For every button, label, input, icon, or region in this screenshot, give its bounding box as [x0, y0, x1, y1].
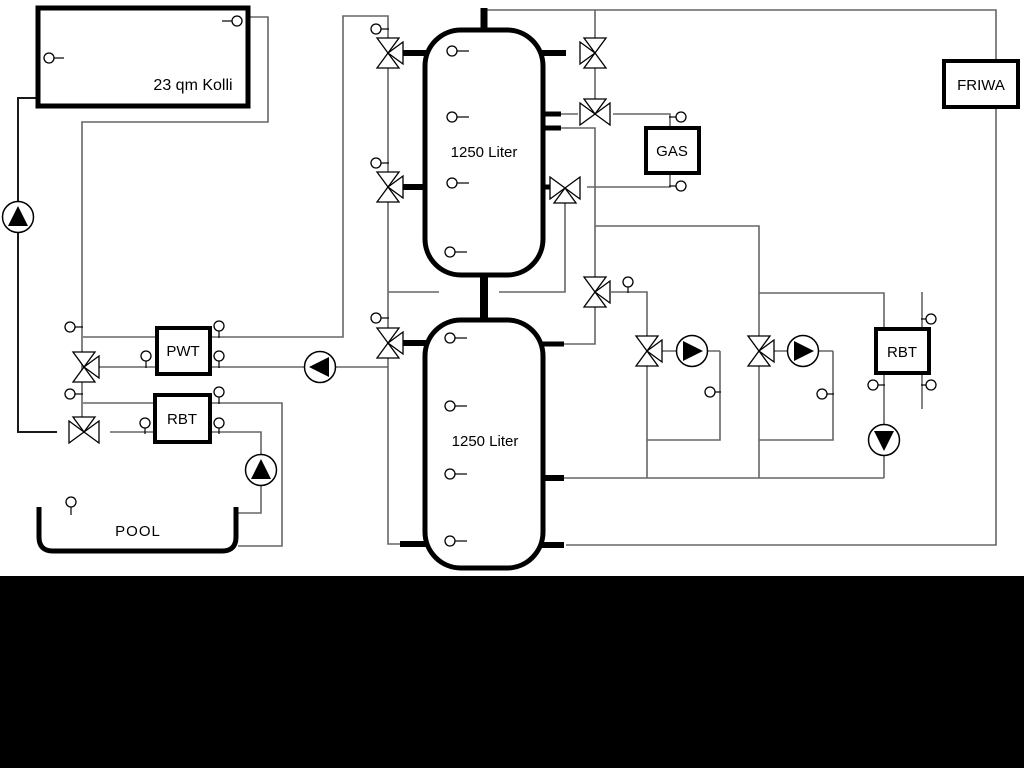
sensor-bulb: [926, 314, 936, 324]
pump-rbt-right-icon: [869, 425, 900, 456]
bottom-black-band: [0, 576, 1024, 768]
sensor-bulb: [65, 322, 75, 332]
buffer-tank-2-label: 1250 Liter: [452, 433, 519, 450]
sensor-bulb: [926, 380, 936, 390]
pwt-heat-exchanger-label: PWT: [166, 343, 199, 360]
sensor-bulb: [705, 387, 715, 397]
sensor-bulb: [445, 247, 455, 257]
pump-pwt-icon: [305, 352, 336, 383]
sensor-bulb: [371, 313, 381, 323]
pump-pool-icon: [246, 455, 277, 486]
sensor-bulb: [676, 112, 686, 122]
sensor-bulb: [445, 469, 455, 479]
sensor-bulb: [445, 401, 455, 411]
sensor-bulb: [140, 418, 150, 428]
collector-box-label: 23 qm Kolli: [153, 77, 232, 94]
sensor-bulb: [44, 53, 54, 63]
sensor-bulb: [214, 418, 224, 428]
gas-boiler-label: GAS: [656, 143, 688, 160]
sensor-bulb: [214, 387, 224, 397]
sensor-bulb: [676, 181, 686, 191]
hydraulic-schematic: 23 qm Kolli1250 Liter1250 LiterPWTRBTGAS…: [0, 0, 1024, 768]
sensor-bulb: [623, 277, 633, 287]
sensor-bulb: [868, 380, 878, 390]
sensor-bulb: [214, 321, 224, 331]
sensor-bulb: [817, 389, 827, 399]
pool-label: POOL: [115, 523, 161, 540]
pump-branch2-icon: [788, 336, 819, 367]
sensor-bulb: [447, 178, 457, 188]
pump-branch1-icon: [677, 336, 708, 367]
sensor-bulb: [445, 536, 455, 546]
schematic-page: 23 qm Kolli1250 Liter1250 LiterPWTRBTGAS…: [0, 0, 1024, 768]
sensor-bulb: [371, 158, 381, 168]
sensor-bulb: [65, 389, 75, 399]
friwa-station-label: FRIWA: [957, 77, 1005, 94]
rbt-left-heat-exchanger-label: RBT: [167, 411, 197, 428]
rbt-right-heat-exchanger-label: RBT: [887, 344, 917, 361]
sensor-bulb: [232, 16, 242, 26]
sensor-bulb: [66, 497, 76, 507]
sensor-bulb: [447, 112, 457, 122]
buffer-tank-1-label: 1250 Liter: [451, 144, 518, 161]
pump-solar-icon: [3, 202, 34, 233]
sensor-bulb: [214, 351, 224, 361]
sensor-bulb: [445, 333, 455, 343]
sensor-bulb: [447, 46, 457, 56]
sensor-bulb: [371, 24, 381, 34]
sensor-bulb: [141, 351, 151, 361]
